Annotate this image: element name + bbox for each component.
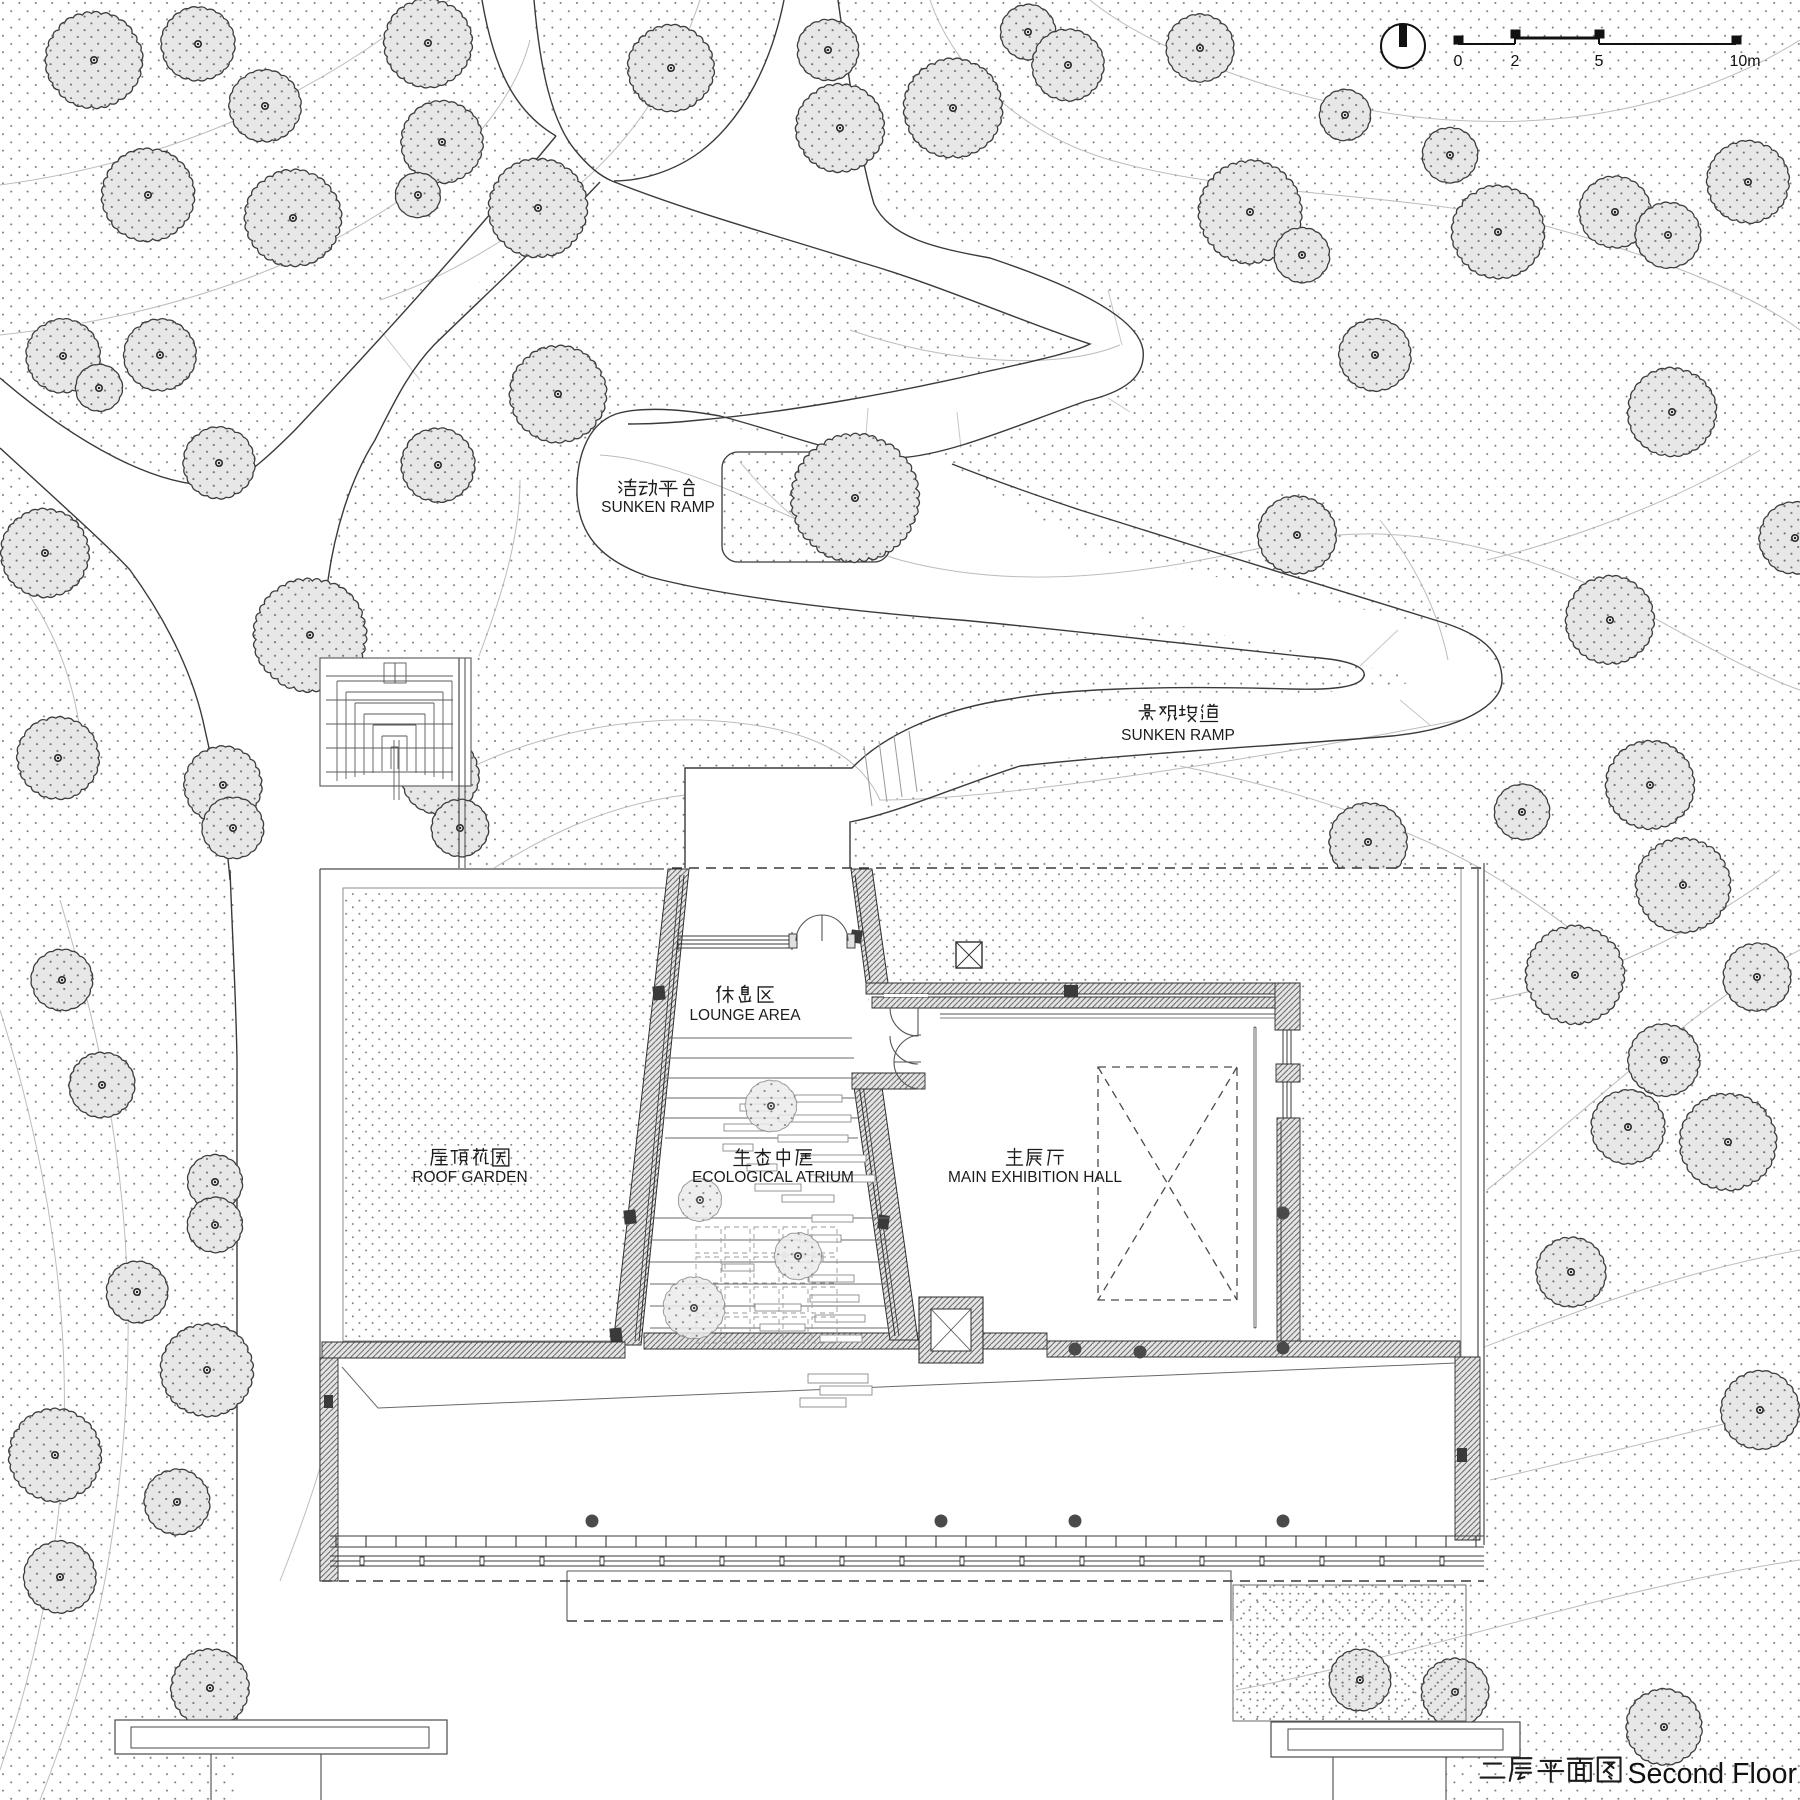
svg-text:LOUNGE AREA: LOUNGE AREA	[689, 1007, 801, 1024]
svg-text:ROOF GARDEN: ROOF GARDEN	[412, 1169, 527, 1186]
svg-text:5: 5	[1595, 53, 1604, 70]
svg-text:Second Floor: Second Floor	[1627, 1758, 1797, 1790]
svg-text:ECOLOGICAL ATRIUM: ECOLOGICAL ATRIUM	[692, 1169, 854, 1186]
svg-text:10m: 10m	[1729, 53, 1760, 70]
svg-text:SUNKEN RAMP: SUNKEN RAMP	[601, 499, 715, 516]
svg-text:SUNKEN RAMP: SUNKEN RAMP	[1121, 727, 1235, 744]
svg-text:2: 2	[1511, 53, 1520, 70]
svg-text:0: 0	[1454, 53, 1463, 70]
svg-text:MAIN EXHIBITION HALL: MAIN EXHIBITION HALL	[948, 1169, 1122, 1186]
